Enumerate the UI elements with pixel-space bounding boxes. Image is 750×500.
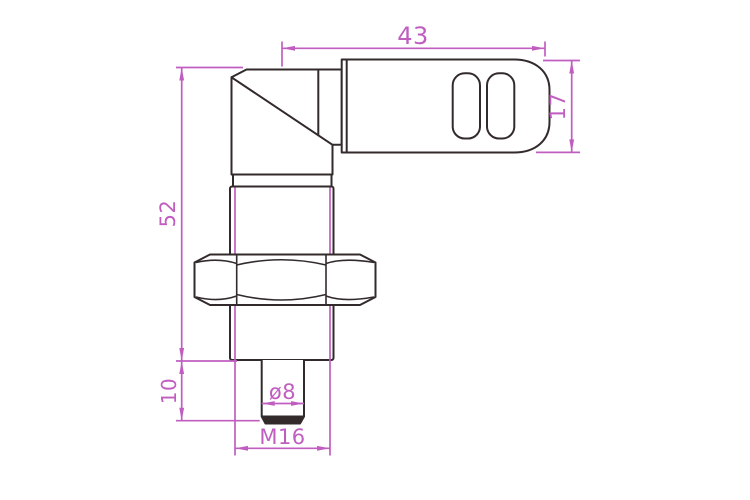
dim-43-label: 43 [397,22,429,50]
head-slot-left [453,73,480,138]
dim-10-label: 10 [157,378,181,404]
elbow-connector-body [232,70,342,175]
tip-chamfer-band [262,416,304,424]
technical-drawing-canvas: 43 17 52 10 ø8 M16 [0,0,750,500]
sensor-dimension-drawing: 43 17 52 10 ø8 M16 [0,0,750,500]
dimension-10: 10 [157,361,260,421]
dimension-m16: M16 [235,425,330,451]
dim-dia8-label: ø8 [269,380,296,404]
hex-nut [195,255,376,306]
connector-head [342,60,550,153]
dim-m16-label: M16 [259,425,305,449]
neck-ring [233,175,332,187]
head-slot-right [487,73,514,138]
dim-52-label: 52 [156,200,180,228]
dim-17-label: 17 [546,93,570,121]
